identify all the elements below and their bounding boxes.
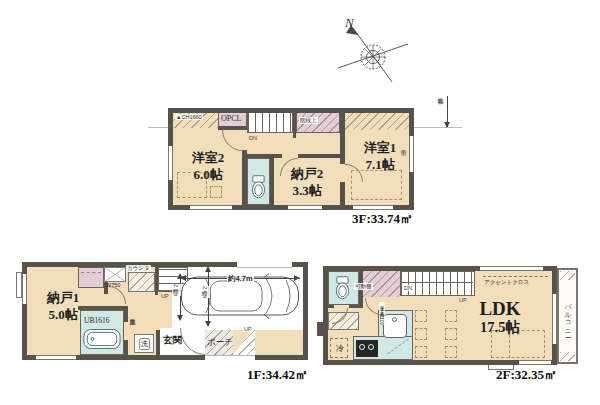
counter-label: カウンタ bbox=[126, 265, 151, 272]
stove-burner bbox=[368, 344, 374, 350]
dim-arrow bbox=[205, 321, 211, 327]
porch-up-label: UP bbox=[243, 326, 253, 332]
room-size: 6.0帖 bbox=[176, 167, 240, 184]
stove-burner bbox=[359, 344, 365, 350]
stairs-dn-label: DN bbox=[403, 285, 413, 291]
balcony-hatch bbox=[560, 271, 575, 280]
wall-segment bbox=[124, 310, 128, 322]
wall-segment bbox=[303, 262, 308, 360]
window bbox=[36, 355, 76, 360]
compass-icon: N bbox=[332, 10, 418, 90]
window bbox=[519, 360, 551, 365]
room-name: 納戸1 bbox=[32, 290, 94, 307]
stairs-up-label: UP bbox=[459, 297, 467, 303]
wall-segment bbox=[349, 305, 359, 308]
dim-arrow bbox=[294, 275, 300, 281]
wall-segment bbox=[242, 150, 247, 205]
wall-segment bbox=[156, 330, 160, 355]
floor3-area-label: 3F:33.74㎡ bbox=[352, 210, 413, 228]
wall-segment bbox=[340, 112, 345, 164]
stairs-up-label: UP bbox=[161, 293, 169, 299]
driveway-opening bbox=[237, 262, 292, 268]
dashed-furniture bbox=[351, 170, 402, 200]
dashed-furniture bbox=[210, 186, 222, 198]
hanger-pipe bbox=[81, 272, 101, 278]
door-arc bbox=[108, 286, 126, 304]
window bbox=[190, 205, 232, 210]
dashed-chair bbox=[415, 310, 427, 322]
porch-opening bbox=[205, 355, 255, 361]
entrance-label: 玄関 bbox=[163, 334, 182, 347]
slope-dim-arrow bbox=[444, 122, 450, 128]
car-width-mid-label: 約2.4m bbox=[201, 286, 210, 298]
dashed-chair bbox=[445, 328, 457, 340]
dashed-chair bbox=[445, 310, 457, 322]
floor2-area-label: 2F:32.35㎡ bbox=[496, 366, 557, 384]
stairs-dn-label: DN bbox=[249, 135, 257, 141]
fridge-label: 冷 bbox=[336, 343, 344, 354]
stairs-divider bbox=[402, 282, 473, 283]
counter-desk bbox=[128, 272, 155, 292]
door-arc bbox=[222, 130, 243, 151]
room-label-ldk: LDK 17.5帖 bbox=[468, 299, 532, 336]
balcony: バルコニー bbox=[557, 268, 578, 364]
room-name: LDK bbox=[468, 299, 532, 320]
porch-label: ポーチ bbox=[207, 337, 233, 349]
sloped-ceiling-area bbox=[345, 112, 409, 130]
floor1-plan: W750 カウンタ UP 納戸1 5.0帖 UB1616 洗面室 洗 bbox=[22, 262, 308, 360]
compass-north-label: N bbox=[344, 15, 355, 30]
wall-segment bbox=[270, 158, 274, 205]
sink-faucet bbox=[392, 317, 397, 322]
bath-label: UB1616 bbox=[84, 316, 109, 325]
stair-top-label: 階段上 bbox=[299, 117, 318, 124]
floor3-plan: ▲CH1660 OPCL DN 階段上 洋室2 6.0帖 bbox=[168, 108, 414, 210]
w750-label: W750 bbox=[106, 282, 120, 288]
wall-protrusion bbox=[317, 322, 324, 336]
floor1-area-label: 1F:34.42㎡ bbox=[247, 366, 308, 384]
wall-segment bbox=[323, 266, 328, 365]
balcony-label: バルコニー bbox=[563, 298, 573, 335]
room-size: 17.5帖 bbox=[468, 320, 532, 336]
shelf-label: 可動棚 bbox=[354, 283, 373, 290]
bathtub-icon bbox=[83, 328, 121, 350]
accent-dashed-line bbox=[483, 276, 548, 277]
room-label-west2: 洋室2 6.0帖 bbox=[176, 150, 240, 184]
window bbox=[288, 205, 322, 210]
room-label-west1: 洋室1 7.1帖 bbox=[352, 140, 408, 174]
dim-arrow bbox=[177, 315, 183, 321]
car-width-left-label: 約2.1m bbox=[172, 284, 181, 296]
room-name: 洋室2 bbox=[176, 150, 240, 167]
wall-segment bbox=[168, 108, 414, 113]
wall-segment bbox=[298, 154, 345, 158]
car-length-label: 約4.7m bbox=[227, 274, 254, 284]
room-size: 3.3帖 bbox=[276, 183, 338, 200]
wall-segment bbox=[124, 340, 128, 355]
washer-label: 洗 bbox=[139, 338, 150, 350]
closet-cross-lines bbox=[104, 267, 126, 282]
toilet-icon bbox=[251, 174, 266, 200]
dim-arrow bbox=[177, 273, 183, 279]
window bbox=[22, 274, 27, 304]
wall-segment bbox=[340, 182, 345, 205]
dim-arrow bbox=[205, 266, 211, 272]
balcony-hatch bbox=[560, 352, 575, 361]
floorplan-canvas: 勾配天井 N ▲CH1660 OPCL DN 階段上 bbox=[0, 0, 600, 405]
window bbox=[480, 266, 543, 271]
window bbox=[168, 146, 173, 180]
room-name: 洋室1 bbox=[352, 140, 408, 157]
ceiling-height-label: ▲CH1660 bbox=[175, 114, 203, 120]
room-size: 7.1帖 bbox=[352, 157, 408, 174]
floor2-plan: 可動棚 DN UP アクセントクロス LDK 17.5帖 下り天井H=2100 … bbox=[323, 266, 557, 365]
dashed-chair bbox=[415, 328, 427, 340]
wall-segment bbox=[293, 108, 296, 138]
window bbox=[409, 136, 414, 172]
stairs-2f bbox=[400, 271, 475, 296]
dashed-chair bbox=[415, 346, 427, 358]
dashed-chair bbox=[445, 346, 457, 358]
accent-label: アクセントクロス bbox=[484, 279, 529, 286]
kitchen-note-label: 下り天井H=2100 bbox=[379, 302, 385, 325]
room-label-storage2: 納戸2 3.3帖 bbox=[276, 166, 338, 200]
wall-segment bbox=[155, 267, 158, 295]
toilet-icon bbox=[335, 275, 350, 301]
room-name: 納戸2 bbox=[276, 166, 338, 183]
dim-line-width1 bbox=[180, 275, 181, 320]
open-closet-label: OPCL bbox=[221, 114, 241, 123]
wall-segment bbox=[274, 154, 282, 158]
